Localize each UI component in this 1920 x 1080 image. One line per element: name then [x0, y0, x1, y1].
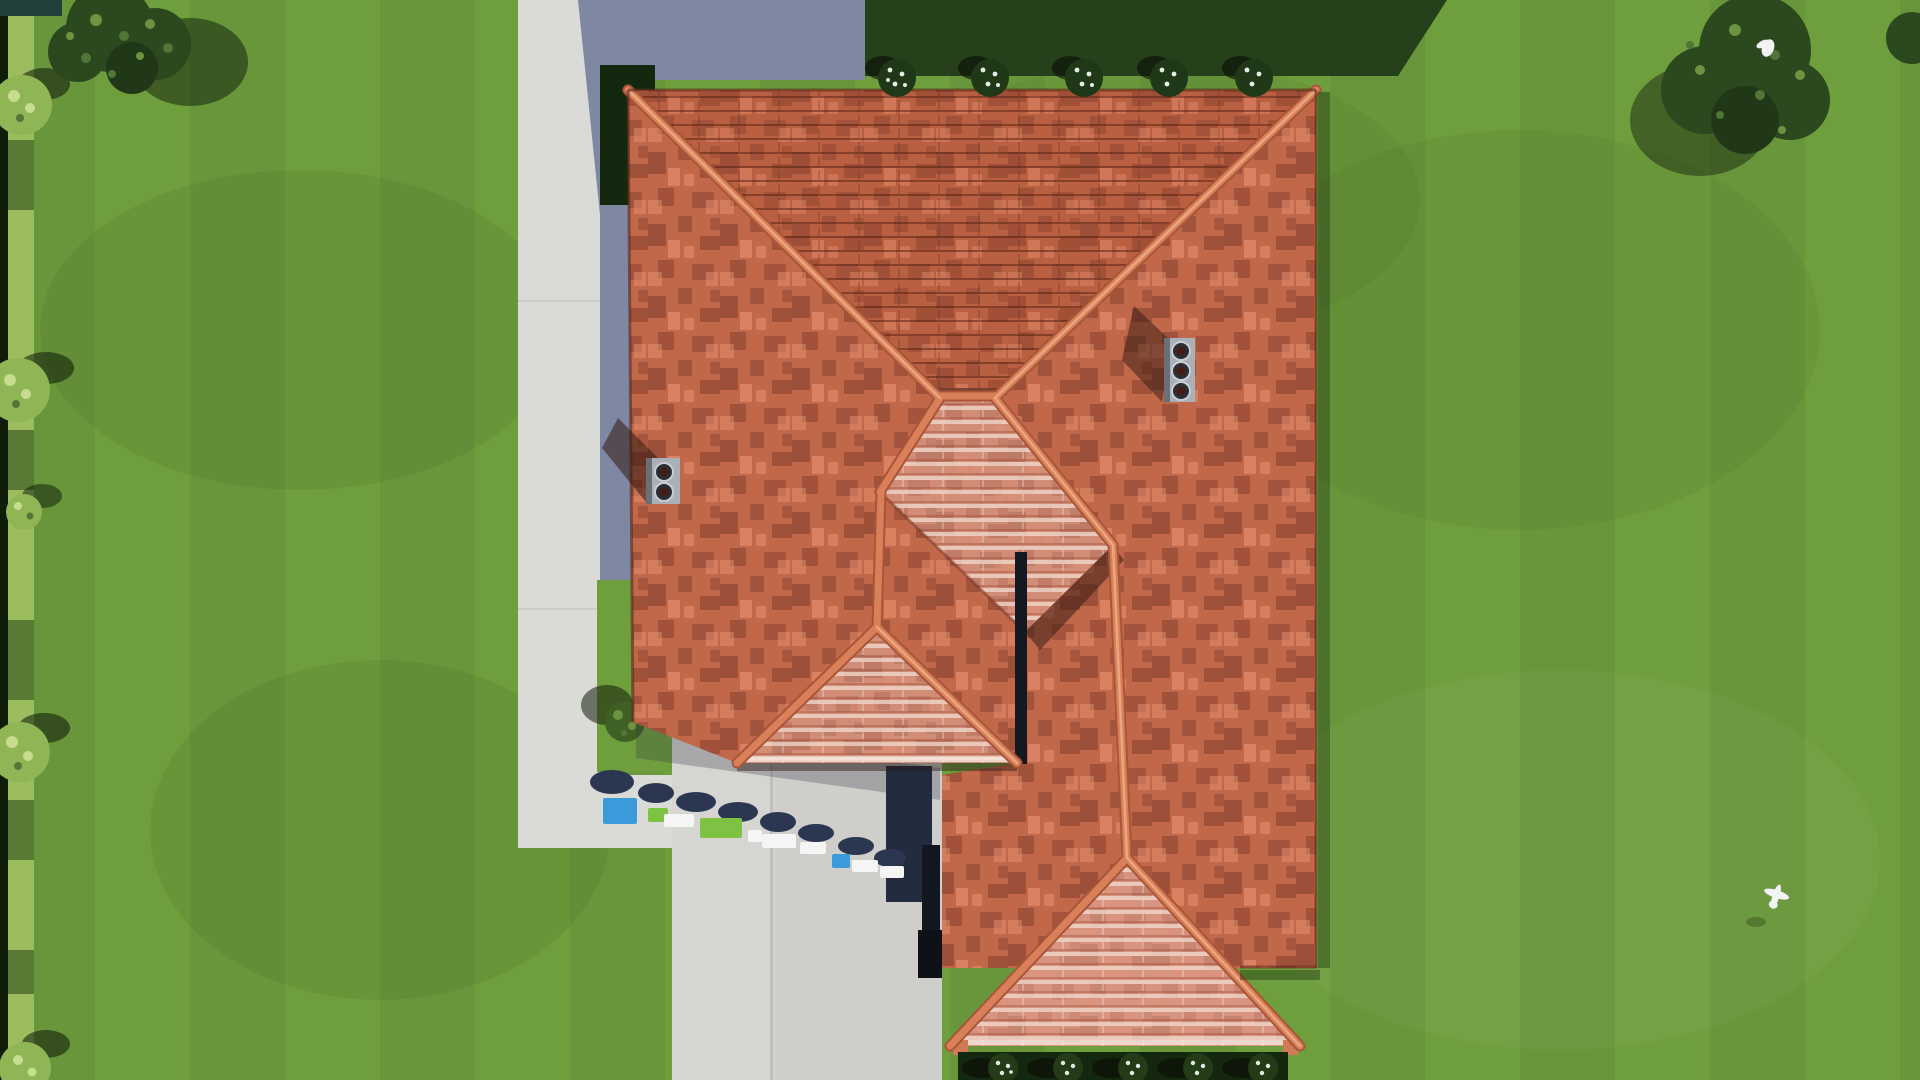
watermark-block-white: [664, 814, 694, 827]
corner-bush: [0, 0, 62, 16]
lawn-patch: [40, 170, 560, 490]
wall-shadow: [918, 930, 942, 978]
watermark-block-blue: [603, 798, 637, 824]
roof-wall-slit-shadow: [1015, 552, 1027, 764]
gable-eave-shadow: [737, 763, 1017, 771]
driveway-joint: [770, 728, 773, 1080]
lawn-patch: [1240, 670, 1880, 1050]
watermark-block-white: [748, 830, 762, 842]
chimney-flue: [1172, 342, 1190, 400]
porch-gutter-highlight: [950, 1040, 1300, 1045]
wall-shadow: [922, 845, 940, 935]
bird-shadow: [1746, 917, 1766, 927]
south-eave-shadow: [1240, 970, 1320, 980]
watermark-block-white: [880, 866, 904, 878]
gutter-highlight: [737, 757, 1017, 762]
porch-flower-bushes: [958, 1052, 1288, 1080]
watermark-block-blue: [832, 854, 850, 868]
walkway: [518, 0, 600, 848]
aerial-render: [0, 0, 1920, 1080]
watermark-block-white: [852, 860, 878, 872]
watermark-block-white: [762, 834, 796, 848]
watermark-block-green: [700, 818, 742, 838]
east-eave-shadow: [1318, 92, 1330, 968]
watermark-block-white: [800, 842, 826, 854]
